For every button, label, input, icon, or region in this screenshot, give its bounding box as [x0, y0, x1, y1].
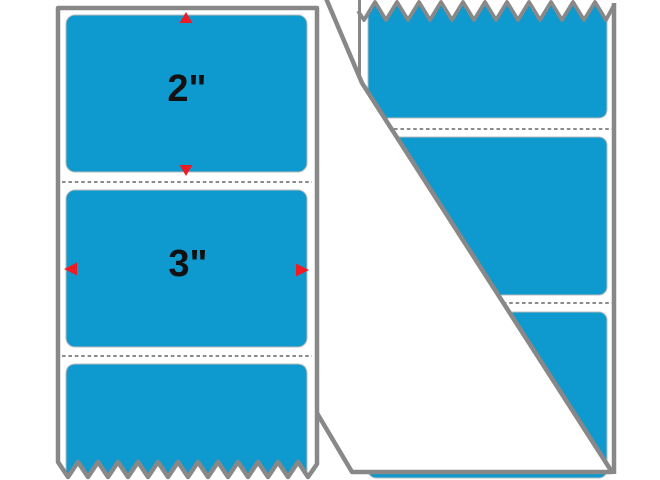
width-dimension-label: 3"	[168, 245, 207, 283]
peeled-label-1	[368, 2, 607, 118]
label-diagram: 2" 3"	[0, 0, 660, 480]
diagram-canvas	[0, 0, 660, 480]
height-dimension-label: 2"	[167, 70, 206, 108]
front-label-3	[66, 364, 307, 477]
